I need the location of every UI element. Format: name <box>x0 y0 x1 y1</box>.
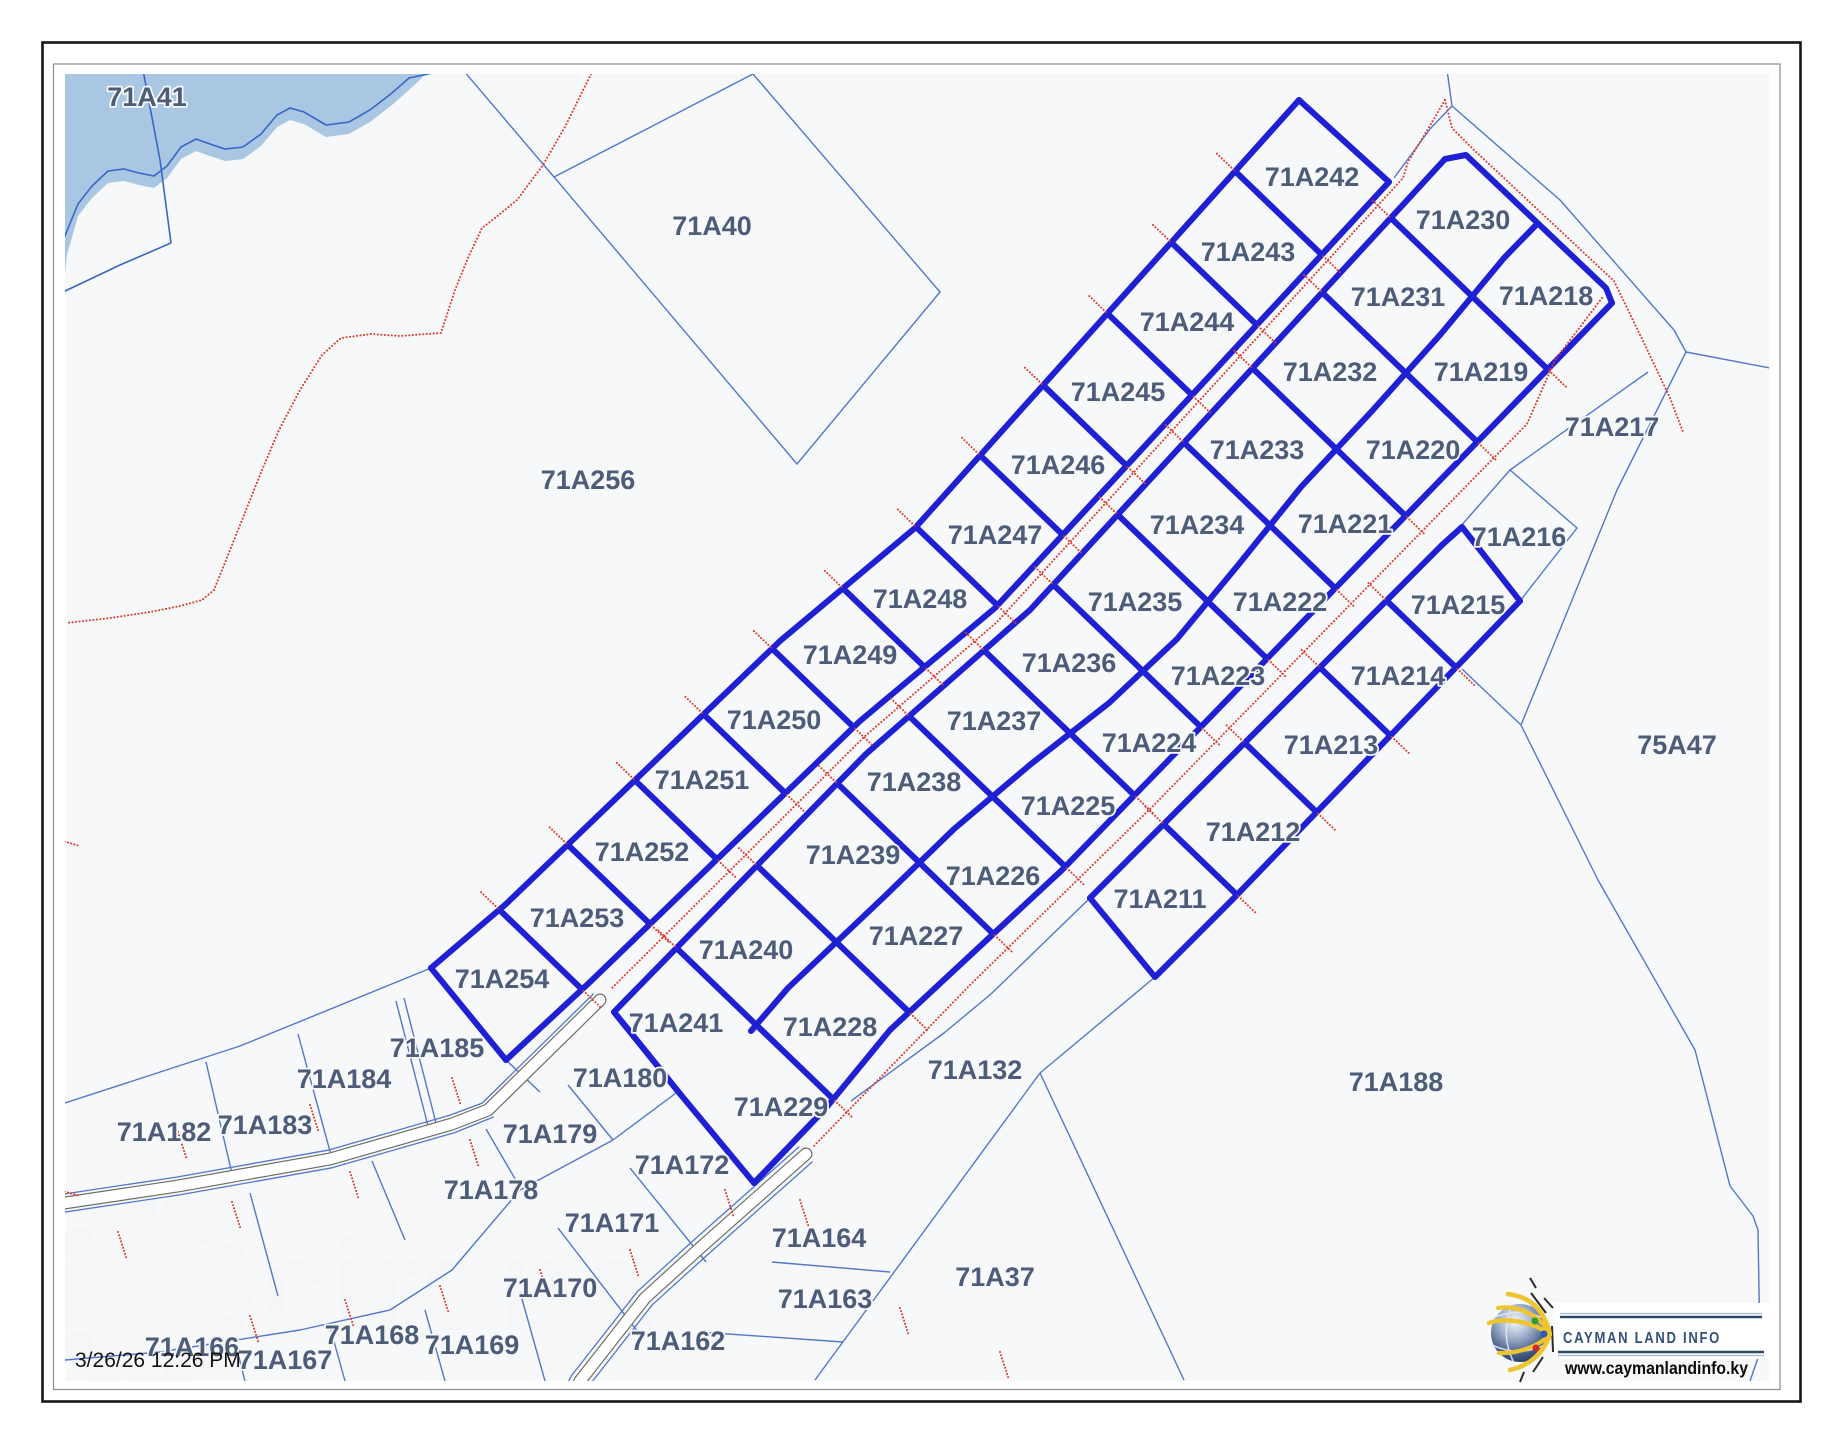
svg-text:71A213: 71A213 <box>1284 730 1379 760</box>
svg-text:71A216: 71A216 <box>1472 522 1567 552</box>
svg-text:71A250: 71A250 <box>727 705 822 735</box>
svg-text:71A228: 71A228 <box>783 1012 878 1042</box>
svg-text:71A220: 71A220 <box>1366 435 1461 465</box>
svg-text:71A132: 71A132 <box>928 1055 1023 1085</box>
svg-text:71A240: 71A240 <box>699 935 794 965</box>
svg-text:71A239: 71A239 <box>806 840 901 870</box>
svg-text:71A232: 71A232 <box>1283 357 1378 387</box>
svg-text:71A182: 71A182 <box>117 1117 212 1147</box>
svg-text:71A254: 71A254 <box>455 964 550 994</box>
svg-text:71A217: 71A217 <box>1565 412 1660 442</box>
svg-text:71A246: 71A246 <box>1011 450 1106 480</box>
svg-text:71A252: 71A252 <box>595 837 690 867</box>
svg-text:71A248: 71A248 <box>873 584 968 614</box>
svg-text:71A218: 71A218 <box>1499 281 1594 311</box>
svg-text:75A47: 75A47 <box>1637 730 1717 760</box>
svg-text:71A251: 71A251 <box>655 765 750 795</box>
svg-text:cirdna: cirdna <box>260 1212 652 1358</box>
svg-text:71A244: 71A244 <box>1140 307 1235 337</box>
svg-text:71A40: 71A40 <box>672 211 752 241</box>
svg-text:71A221: 71A221 <box>1298 509 1393 539</box>
svg-text:71A214: 71A214 <box>1351 661 1446 691</box>
svg-text:71A236: 71A236 <box>1022 648 1117 678</box>
svg-text:71A172: 71A172 <box>635 1150 730 1180</box>
svg-text:71A183: 71A183 <box>218 1110 313 1140</box>
svg-text:71A180: 71A180 <box>573 1063 668 1093</box>
svg-text:71A178: 71A178 <box>444 1175 539 1205</box>
svg-text:71A233: 71A233 <box>1210 435 1305 465</box>
svg-text:71A243: 71A243 <box>1201 237 1296 267</box>
svg-text:71A234: 71A234 <box>1150 510 1245 540</box>
svg-text:71A230: 71A230 <box>1416 205 1511 235</box>
svg-text:71A235: 71A235 <box>1088 587 1183 617</box>
svg-text:71A211: 71A211 <box>1113 884 1206 914</box>
svg-text:71A231: 71A231 <box>1351 282 1446 312</box>
svg-text:71A227: 71A227 <box>869 921 964 951</box>
svg-text:71A37: 71A37 <box>955 1262 1035 1292</box>
svg-text:71A223: 71A223 <box>1171 661 1266 691</box>
svg-text:71A245: 71A245 <box>1071 377 1166 407</box>
svg-text:71A219: 71A219 <box>1434 357 1529 387</box>
svg-text:71A229: 71A229 <box>734 1092 829 1122</box>
svg-text:71A188: 71A188 <box>1349 1067 1444 1097</box>
svg-text:71A215: 71A215 <box>1411 590 1506 620</box>
svg-text:71A237: 71A237 <box>947 706 1042 736</box>
svg-text:71A253: 71A253 <box>530 903 625 933</box>
svg-text:71A222: 71A222 <box>1233 587 1328 617</box>
svg-text:71A212: 71A212 <box>1206 817 1301 847</box>
svg-text:71A247: 71A247 <box>948 520 1043 550</box>
svg-text:www.caymanlandinfo.ky: www.caymanlandinfo.ky <box>1564 1358 1748 1378</box>
svg-text:71A164: 71A164 <box>772 1223 867 1253</box>
svg-text:71A256: 71A256 <box>541 465 636 495</box>
svg-text:71A224: 71A224 <box>1102 728 1197 758</box>
svg-text:71A225: 71A225 <box>1021 791 1116 821</box>
svg-text:71A41: 71A41 <box>107 82 187 112</box>
svg-text:71A238: 71A238 <box>867 767 962 797</box>
svg-text:71A185: 71A185 <box>390 1033 485 1063</box>
svg-text:3/26/26 12:26 PM: 3/26/26 12:26 PM <box>75 1349 241 1372</box>
svg-text:71A249: 71A249 <box>803 640 898 670</box>
svg-text:71A242: 71A242 <box>1265 162 1360 192</box>
svg-text:71A241: 71A241 <box>629 1008 724 1038</box>
svg-text:71A163: 71A163 <box>778 1284 873 1314</box>
svg-text:71A184: 71A184 <box>297 1064 392 1094</box>
svg-text:CAYMAN LAND INFO: CAYMAN LAND INFO <box>1563 1330 1721 1347</box>
svg-text:71A179: 71A179 <box>503 1119 598 1149</box>
svg-text:71A226: 71A226 <box>946 861 1041 891</box>
